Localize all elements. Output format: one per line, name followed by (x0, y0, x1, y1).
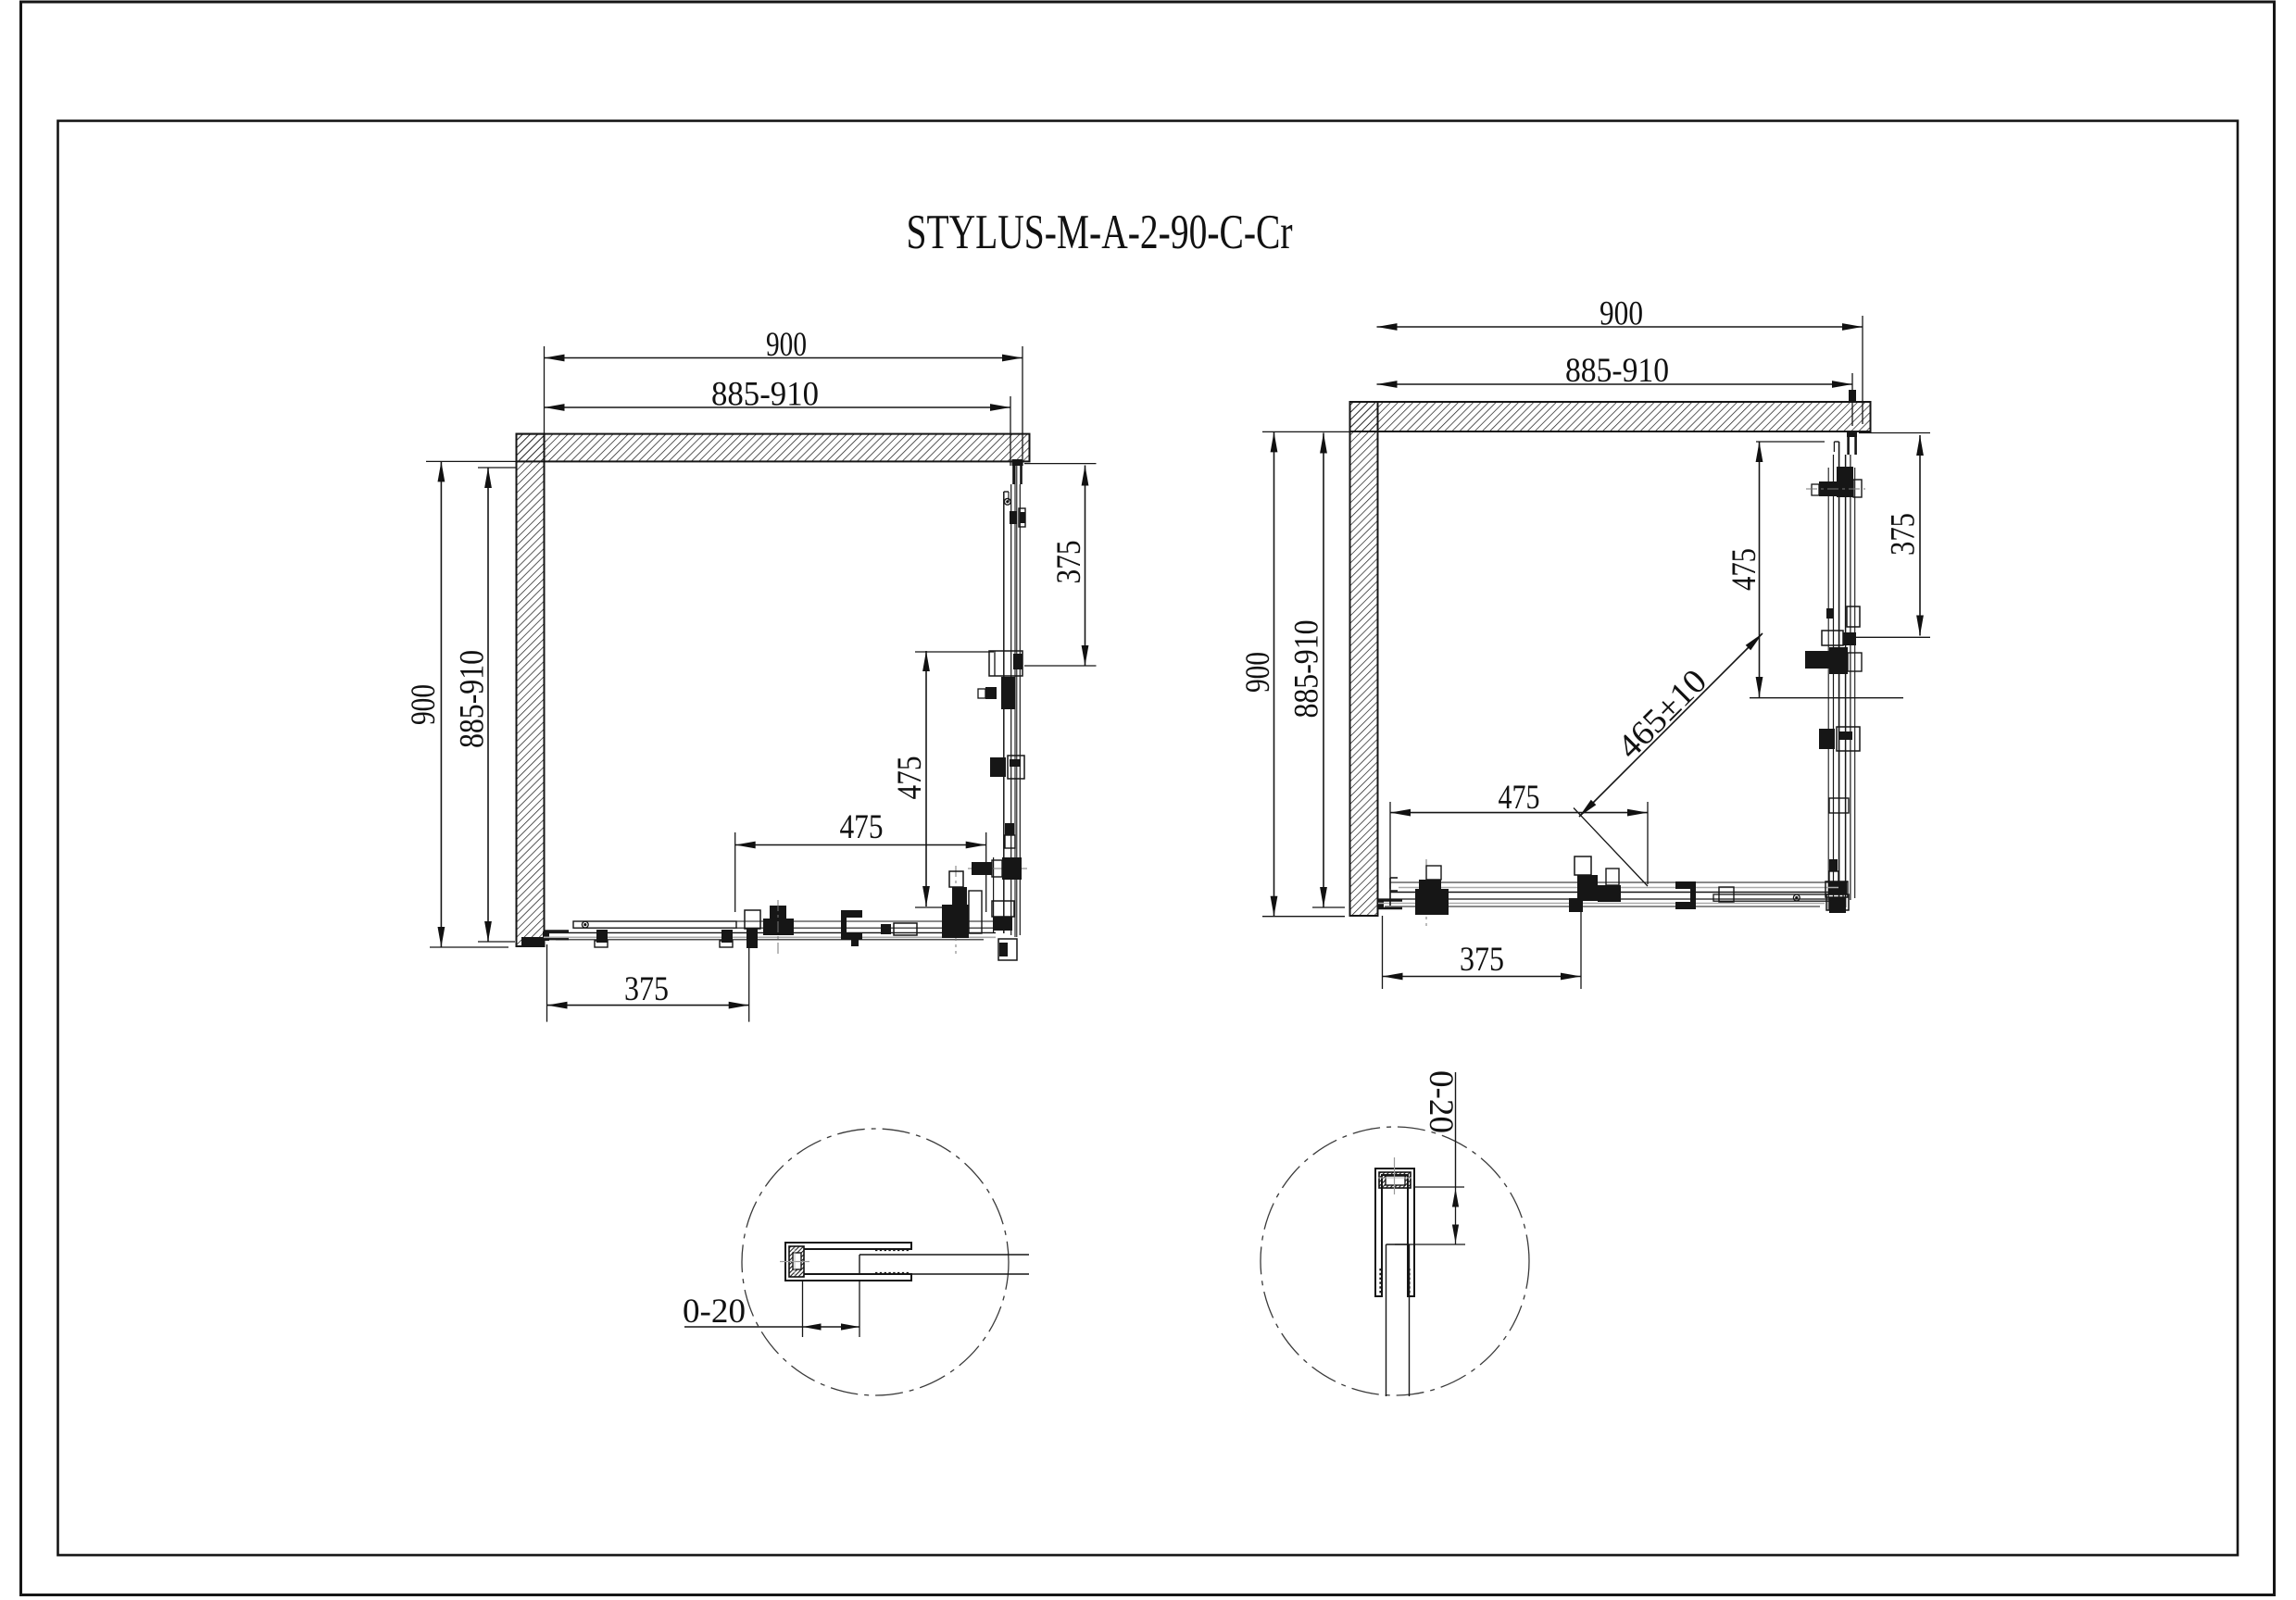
svg-text:0-20: 0-20 (683, 1293, 746, 1331)
svg-text:375: 375 (1460, 941, 1504, 979)
svg-text:375: 375 (1050, 541, 1088, 584)
svg-text:900: 900 (1600, 295, 1643, 333)
svg-text:475: 475 (840, 808, 884, 846)
svg-text:885-910: 885-910 (711, 376, 819, 414)
svg-text:885-910: 885-910 (1565, 352, 1669, 390)
svg-text:885-910: 885-910 (454, 650, 492, 748)
svg-text:STYLUS-M-A-2-90-C-Cr: STYLUS-M-A-2-90-C-Cr (907, 206, 1293, 259)
svg-text:475: 475 (891, 756, 929, 800)
svg-text:475: 475 (1725, 548, 1763, 591)
svg-text:375: 375 (624, 970, 669, 1008)
svg-text:375: 375 (1885, 513, 1923, 556)
svg-text:900: 900 (405, 684, 443, 725)
svg-text:885-910: 885-910 (1288, 620, 1326, 719)
svg-text:0-20: 0-20 (1422, 1070, 1460, 1133)
svg-text:900: 900 (766, 326, 807, 364)
svg-text:900: 900 (1239, 652, 1277, 693)
svg-text:475: 475 (1499, 779, 1540, 817)
